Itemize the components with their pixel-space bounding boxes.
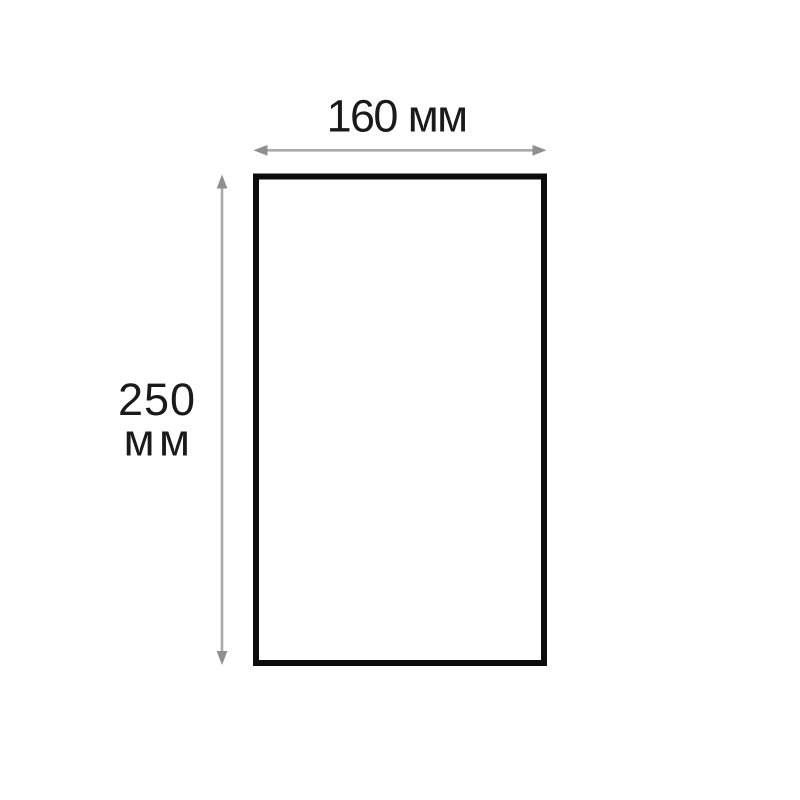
svg-text:160 мм: 160 мм <box>327 91 467 142</box>
svg-text:мм: мм <box>124 415 195 466</box>
